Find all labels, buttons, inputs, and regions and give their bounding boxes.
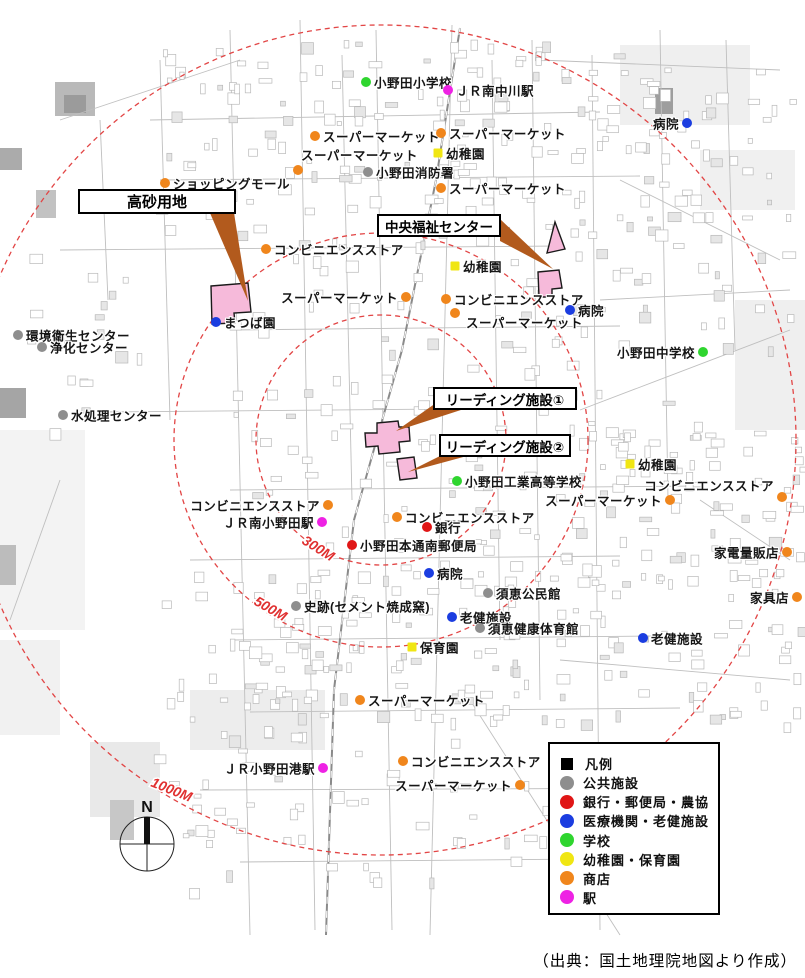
legend-row: 駅 [560, 888, 706, 907]
shop-marker-icon [450, 308, 460, 318]
medical-marker-icon [424, 568, 434, 578]
station-marker-icon [317, 517, 327, 527]
compass-needle [144, 817, 150, 844]
legend-label: 凡例 [585, 754, 613, 773]
marker-label: 須恵公民館 [496, 584, 561, 603]
marker-label: 幼稚園 [446, 144, 485, 163]
shop-marker-icon [323, 500, 333, 510]
school-marker-icon [361, 77, 371, 87]
public-marker-icon [13, 330, 23, 340]
school-marker-icon [698, 347, 708, 357]
marker-label: 病院 [437, 564, 463, 583]
station-marker-icon [318, 763, 328, 773]
marker-label: 老健施設 [651, 629, 703, 648]
marker-label: 小野田中学校 [617, 343, 695, 362]
school-marker-icon [452, 476, 462, 486]
marker-label: スーパーマーケット [545, 491, 662, 510]
distance-label: 300M [299, 532, 337, 564]
medical-marker-icon [211, 317, 221, 327]
marker-label: 銀行 [435, 518, 461, 537]
marker-label: 小野田消防署 [376, 163, 454, 182]
marker-label: まつば園 [224, 313, 276, 332]
shop-marker-icon [777, 492, 787, 502]
marker-label: ＪＲ小野田港駅 [224, 759, 315, 778]
medical-marker-icon [682, 118, 692, 128]
callout-leading-1: リーディング施設① [433, 387, 577, 410]
callout-arrow-chuo-fukushi [500, 219, 553, 269]
kindergarten-marker-icon [434, 149, 443, 158]
marker-label: 小野田小学校 [374, 73, 452, 92]
bank-marker-icon [422, 522, 432, 532]
shop-legend-icon [560, 871, 574, 885]
shop-marker-icon [293, 165, 303, 175]
marker-label: コンビニエンスストア [274, 240, 404, 259]
legend-label: 公共施設 [583, 773, 639, 792]
shop-marker-icon [160, 178, 170, 188]
callout-chuo-fukushi: 中央福祉センター [377, 214, 501, 237]
shop-marker-icon [441, 294, 451, 304]
marker-label: 小野田工業高等学校 [465, 472, 582, 491]
marker-label: スーパーマーケット [449, 179, 566, 198]
kindergarten-legend-icon [560, 852, 574, 866]
callout-label: 高砂用地 [127, 191, 187, 212]
legend-legend-icon [561, 758, 573, 770]
shop-marker-icon [436, 183, 446, 193]
public-marker-icon [58, 410, 68, 420]
shop-marker-icon [261, 244, 271, 254]
marker-label: 水処理センター [71, 406, 162, 425]
marker-label: スーパーマーケット [466, 313, 583, 332]
callout-label: リーディング施設① [446, 389, 565, 409]
shop-marker-icon [665, 495, 675, 505]
callout-leading-2: リーディング施設② [439, 434, 571, 457]
marker-label: コンビニエンスストア [644, 476, 774, 495]
legend-row: 公共施設 [560, 773, 706, 792]
marker-label: スーパーマーケット [301, 145, 418, 164]
public-marker-icon [291, 601, 301, 611]
legend-row: 学校 [560, 831, 706, 850]
legend-row: 医療機関・老健施設 [560, 811, 706, 830]
marker-label: 保育園 [420, 638, 459, 657]
public-marker-icon [475, 623, 485, 633]
station-legend-icon [560, 890, 574, 904]
marker-label: 幼稚園 [638, 455, 677, 474]
marker-label: ＪＲ南小野田駅 [223, 513, 314, 532]
marker-label: 家具店 [750, 588, 789, 607]
compass-north-label: N [141, 799, 153, 816]
legend-label: 銀行・郵便局・農協 [583, 792, 709, 811]
school-legend-icon [560, 833, 574, 847]
marker-label: スーパーマーケット [368, 691, 485, 710]
marker-label: 幼稚園 [463, 257, 502, 276]
marker-label: コンビニエンスストア [454, 290, 584, 309]
marker-label: 家電量販店 [714, 543, 779, 562]
shop-marker-icon [310, 131, 320, 141]
marker-label: 浄化センター [50, 338, 128, 357]
shop-marker-icon [401, 292, 411, 302]
kindergarten-marker-icon [451, 262, 460, 271]
public-marker-icon [37, 342, 47, 352]
marker-label: 須恵健康体育館 [488, 619, 579, 638]
marker-label: スーパーマーケット [449, 124, 566, 143]
legend-label: 幼稚園・保育園 [583, 850, 681, 869]
shop-marker-icon [782, 547, 792, 557]
bank-marker-icon [347, 540, 357, 550]
distance-label: 500M [252, 593, 291, 625]
marker-label: 史跡(セメント焼成窯) [304, 597, 430, 616]
source-note: （出典：国土地理院地図より作成） [533, 949, 797, 971]
marker-label: コンビニエンスストア [411, 752, 541, 771]
marker-label: ＪＲ南中川駅 [456, 81, 534, 100]
callout-label: 中央福祉センター [385, 216, 493, 236]
bank-legend-icon [560, 795, 574, 809]
shop-marker-icon [436, 128, 446, 138]
medical-marker-icon [447, 612, 457, 622]
medical-marker-icon [638, 633, 648, 643]
map-figure: 300M500M1000MN 小野田小学校ＪＲ南中川駅スーパーマーケットスーパー… [0, 0, 805, 978]
legend-box: 凡例公共施設銀行・郵便局・農協医療機関・老健施設学校幼稚園・保育園商店駅 [548, 742, 720, 915]
public-legend-icon [560, 776, 574, 790]
kindergarten-marker-icon [408, 643, 417, 652]
legend-label: 医療機関・老健施設 [583, 811, 709, 830]
callout-label: リーディング施設② [446, 436, 565, 456]
shop-marker-icon [398, 756, 408, 766]
legend-row: 幼稚園・保育園 [560, 850, 706, 869]
public-marker-icon [483, 588, 493, 598]
legend-label: 学校 [583, 831, 611, 850]
public-marker-icon [363, 167, 373, 177]
marker-label: スーパーマーケット [395, 776, 512, 795]
legend-label: 商店 [583, 869, 611, 888]
shop-marker-icon [515, 780, 525, 790]
marker-label: スーパーマーケット [281, 288, 398, 307]
leading-site-2 [397, 457, 417, 480]
shop-marker-icon [392, 512, 402, 522]
callout-arrow-leading-2 [408, 455, 467, 472]
legend-label: 駅 [583, 888, 597, 907]
callout-takasago: 高砂用地 [78, 189, 236, 214]
marker-label: 病院 [653, 114, 679, 133]
kindergarten-marker-icon [626, 460, 635, 469]
shop-marker-icon [355, 695, 365, 705]
station-marker-icon [443, 85, 453, 95]
marker-label: スーパーマーケット [323, 127, 440, 146]
shop-marker-icon [792, 592, 802, 602]
legend-row: 商店 [560, 869, 706, 888]
medical-legend-icon [560, 814, 574, 828]
legend-row: 銀行・郵便局・農協 [560, 792, 706, 811]
legend-row: 凡例 [560, 754, 706, 773]
marker-label: 小野田本通南郵便局 [360, 536, 477, 555]
